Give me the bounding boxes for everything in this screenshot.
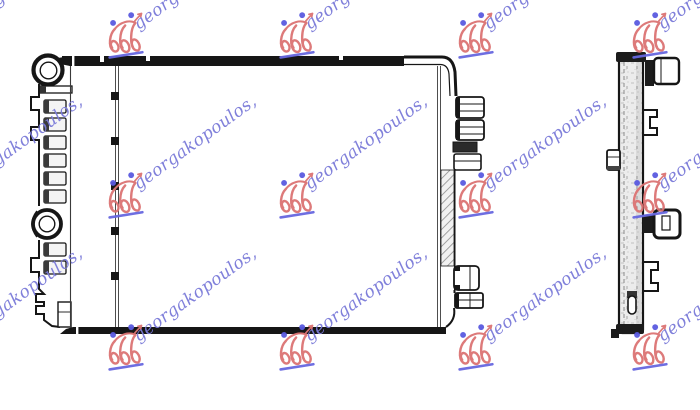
side-view-top-cap <box>616 52 646 62</box>
core-seams <box>71 66 441 327</box>
side-hook-upper <box>643 110 657 135</box>
side-view-foot <box>616 324 644 334</box>
side-mid-connector <box>643 210 680 238</box>
radiator-front-view <box>31 56 484 335</box>
inlet-port <box>33 210 61 238</box>
side-hook-lower <box>643 262 658 291</box>
radiator-technical-drawing <box>0 0 700 410</box>
side-left-tab <box>607 150 620 170</box>
filler-cap <box>34 56 71 85</box>
right-tank <box>441 97 484 327</box>
bottom-right-bracket <box>455 293 483 308</box>
seam-ticks <box>111 92 119 280</box>
top-header-band <box>62 56 404 66</box>
catalog-figure: georgakopoulos, georgakopoulos, georgako… <box>0 0 700 410</box>
right-mid-connector <box>454 266 479 290</box>
radiator-side-view <box>607 52 680 338</box>
right-tank-hatch <box>441 170 454 266</box>
right-tank-connectors <box>453 97 484 170</box>
left-tank-details <box>40 86 72 327</box>
side-top-connector <box>645 58 679 86</box>
side-slot <box>627 291 637 314</box>
bottom-header-band <box>60 327 446 334</box>
